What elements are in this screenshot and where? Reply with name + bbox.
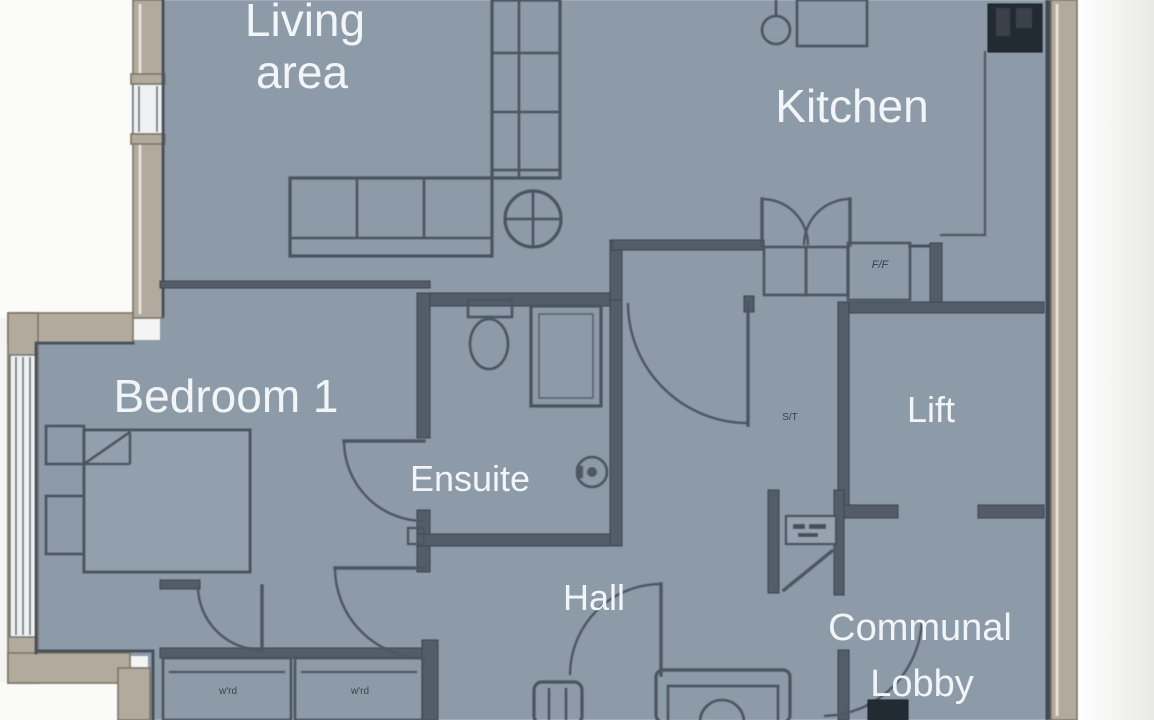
lift-bottom-left-stub [838,505,898,518]
living-area-label-line1: Living [245,0,365,46]
ensuite-left-wall [417,293,430,438]
living-area-label-line2: area [256,46,348,98]
communal-lobby-label-line2: Lobby [870,663,974,705]
hall-label: Hall [563,577,625,618]
round-table [505,191,561,247]
entry-door-label-box [786,516,836,544]
ensuite-bottom-wall [417,534,622,546]
fridge-freezer-label: F/F [872,259,890,271]
wardrobe-left-label: w'rd [218,686,237,697]
bedroom-1-label: Bedroom 1 [113,370,338,422]
bay-bottom-wall [8,653,130,683]
entry-left-jamb [768,490,779,593]
lift-label: Lift [907,389,955,430]
wardrobe-right-label: w'rd [350,686,369,697]
ensuite-label: Ensuite [410,458,530,499]
living-bedroom-wall [160,281,430,288]
left-outer-wall [133,0,163,318]
lift-left-wall [838,302,849,507]
bedroom-nook-wall [160,580,200,589]
kitchen-south-wall [612,240,764,250]
lift-top-wall [838,302,1044,313]
lift-bottom-right-stub [978,505,1044,518]
left-wall-window [133,84,163,134]
floor-plan: Living area Kitchen Bedroom 1 Ensuite Ha… [0,0,1154,720]
lobby-divider-wall [838,650,849,720]
store-label: S/T [782,412,798,423]
kitchen-label: Kitchen [775,80,928,132]
communal-lobby-label-line1: Communal [828,607,1012,649]
bed [84,430,250,572]
hall-pillar [422,640,438,720]
kitchen-appliance [988,4,1042,52]
floor-plan-drawing: Living area Kitchen Bedroom 1 Ensuite Ha… [0,0,1154,720]
ensuite-right-wall [610,293,622,546]
right-outer-wall [1051,0,1077,720]
ensuite-top-wall [417,293,622,306]
bottom-left-outer-wall [118,668,150,720]
